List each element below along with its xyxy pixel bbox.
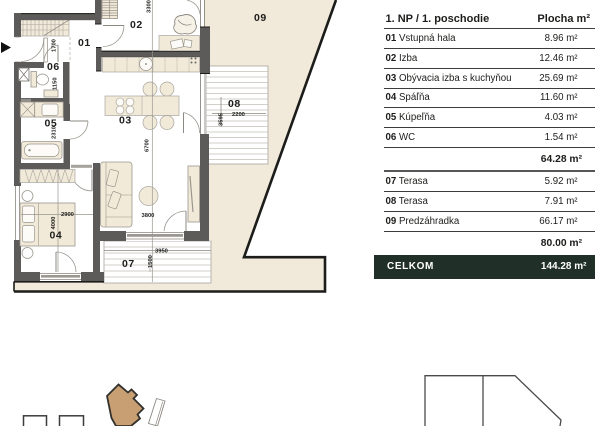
svg-text:02: 02 (130, 19, 143, 31)
svg-text:04: 04 (50, 230, 63, 242)
svg-text:1150: 1150 (53, 77, 59, 90)
svg-text:07: 07 (122, 258, 135, 270)
svg-text:1700: 1700 (52, 39, 58, 52)
svg-text:03: 03 (119, 115, 132, 127)
svg-text:6700: 6700 (145, 139, 151, 152)
svg-text:08: 08 (228, 98, 241, 110)
svg-text:3595: 3595 (219, 112, 225, 126)
svg-text:09: 09 (254, 12, 267, 24)
svg-text:1500: 1500 (148, 255, 154, 268)
svg-text:2200: 2200 (232, 112, 245, 118)
svg-text:4000: 4000 (51, 217, 57, 230)
svg-text:3300: 3300 (147, 0, 153, 13)
svg-text:05: 05 (45, 118, 58, 130)
svg-text:3950: 3950 (155, 249, 168, 255)
svg-text:06: 06 (47, 61, 60, 73)
svg-text:01: 01 (78, 37, 91, 49)
svg-text:2900: 2900 (61, 212, 74, 218)
svg-text:3800: 3800 (142, 213, 155, 219)
